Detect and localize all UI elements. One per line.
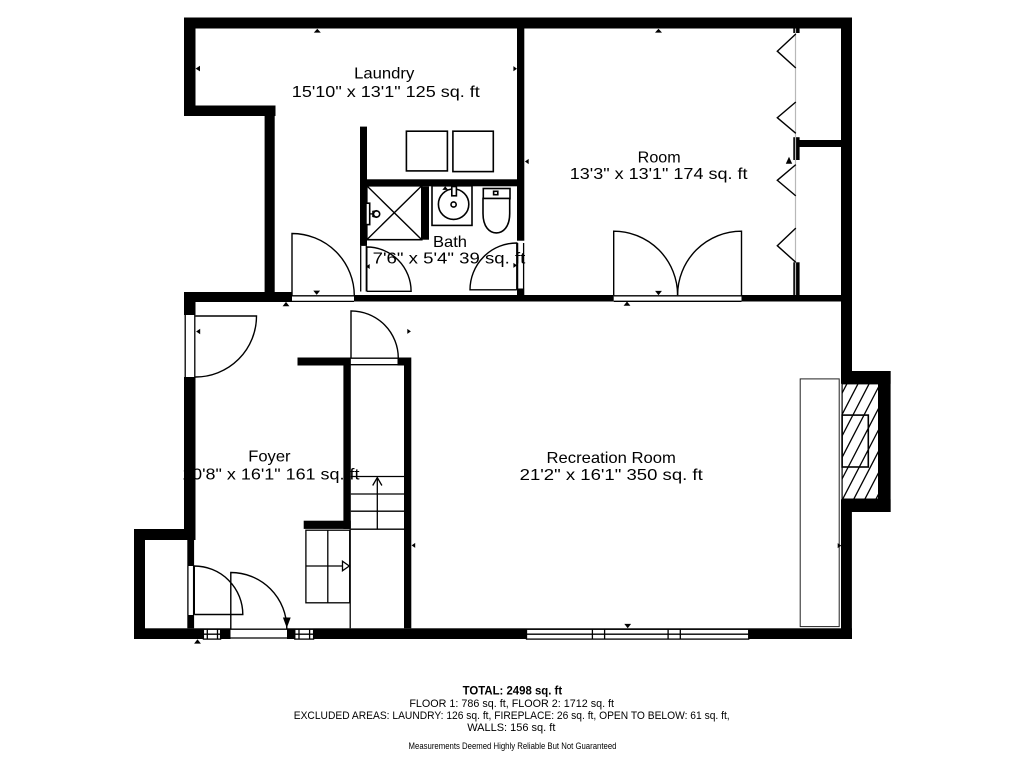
svg-text:Room: Room [638,150,681,167]
svg-text:WALLS: 156 sq. ft: WALLS: 156 sq. ft [467,722,555,734]
svg-text:EXCLUDED AREAS: LAUNDRY: 126 s: EXCLUDED AREAS: LAUNDRY: 126 sq. ft, FIR… [294,710,730,722]
svg-text:15'10" x 13'1" 125 sq. ft: 15'10" x 13'1" 125 sq. ft [292,84,481,101]
svg-text:13'3" x 13'1" 174 sq. ft: 13'3" x 13'1" 174 sq. ft [570,166,748,183]
svg-text:Foyer: Foyer [248,449,291,466]
svg-text:21'2" x 16'1" 350 sq. ft: 21'2" x 16'1" 350 sq. ft [520,467,704,484]
svg-text:TOTAL: 2498 sq. ft: TOTAL: 2498 sq. ft [463,686,563,698]
svg-text:Laundry: Laundry [354,66,414,83]
svg-text:7'6" x 5'4" 39 sq. ft: 7'6" x 5'4" 39 sq. ft [373,251,526,268]
svg-text:10'8" x 16'1" 161 sq. ft: 10'8" x 16'1" 161 sq. ft [182,467,360,484]
svg-text:Recreation Room: Recreation Room [547,450,676,467]
svg-text:Bath: Bath [433,234,467,251]
svg-text:FLOOR 1: 786 sq. ft, FLOOR 2:: FLOOR 1: 786 sq. ft, FLOOR 2: 1712 sq. f… [409,698,614,710]
svg-text:Measurements Deemed Highly Rel: Measurements Deemed Highly Reliable But … [409,741,617,751]
